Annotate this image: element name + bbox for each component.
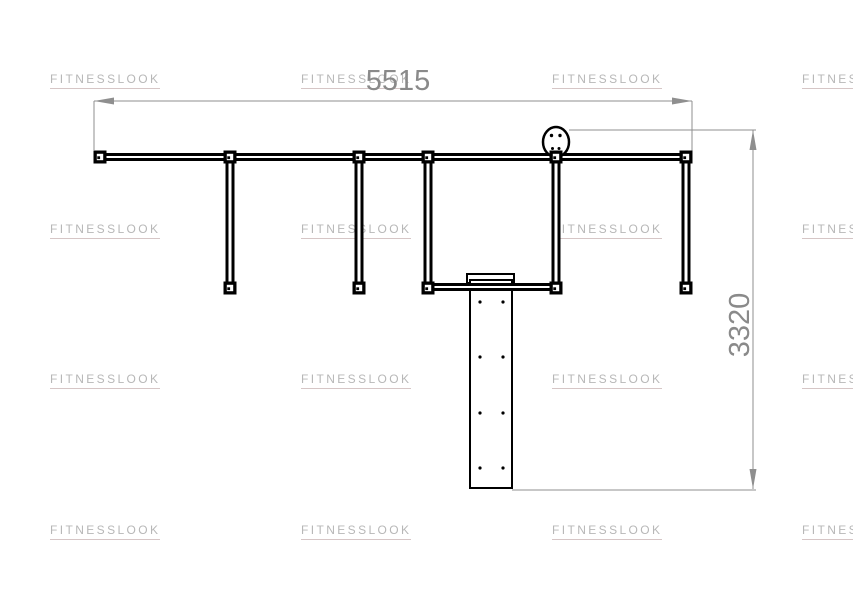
arrow-down-icon [750,469,757,489]
board-hole [478,355,481,358]
figure-mouth-icon [558,147,561,150]
board-hole [478,466,481,469]
arrow-right-icon [672,98,692,105]
board-hole [478,411,481,414]
figure-eye-icon [558,134,561,137]
joint-marker-pin [425,156,428,159]
board-hole [501,411,504,414]
dimension-label-height: 3320 [725,293,755,358]
climbing-board [470,280,512,488]
board-hole [478,300,481,303]
board-hole [501,355,504,358]
joint-marker-pin [97,156,100,159]
board-hole [501,466,504,469]
joint-marker-pin [553,287,556,290]
equipment-plan-diagram: FITNESSLOOKFITNESSLOOKFITNESSLOOKFITNESS… [0,0,853,592]
dimension-label-width: 5515 [350,66,446,96]
joint-marker-pin [425,287,428,290]
figure-eye-icon [550,134,553,137]
joint-marker-pin [227,156,230,159]
joint-marker-pin [356,156,359,159]
joint-marker-pin [683,156,686,159]
joint-marker-pin [553,156,556,159]
joint-marker-pin [227,287,230,290]
joint-marker-pin [683,287,686,290]
arrow-up-icon [750,130,757,150]
board-hole [501,300,504,303]
joint-marker-pin [356,287,359,290]
arrow-left-icon [94,98,114,105]
figure-mouth-icon [551,147,554,150]
